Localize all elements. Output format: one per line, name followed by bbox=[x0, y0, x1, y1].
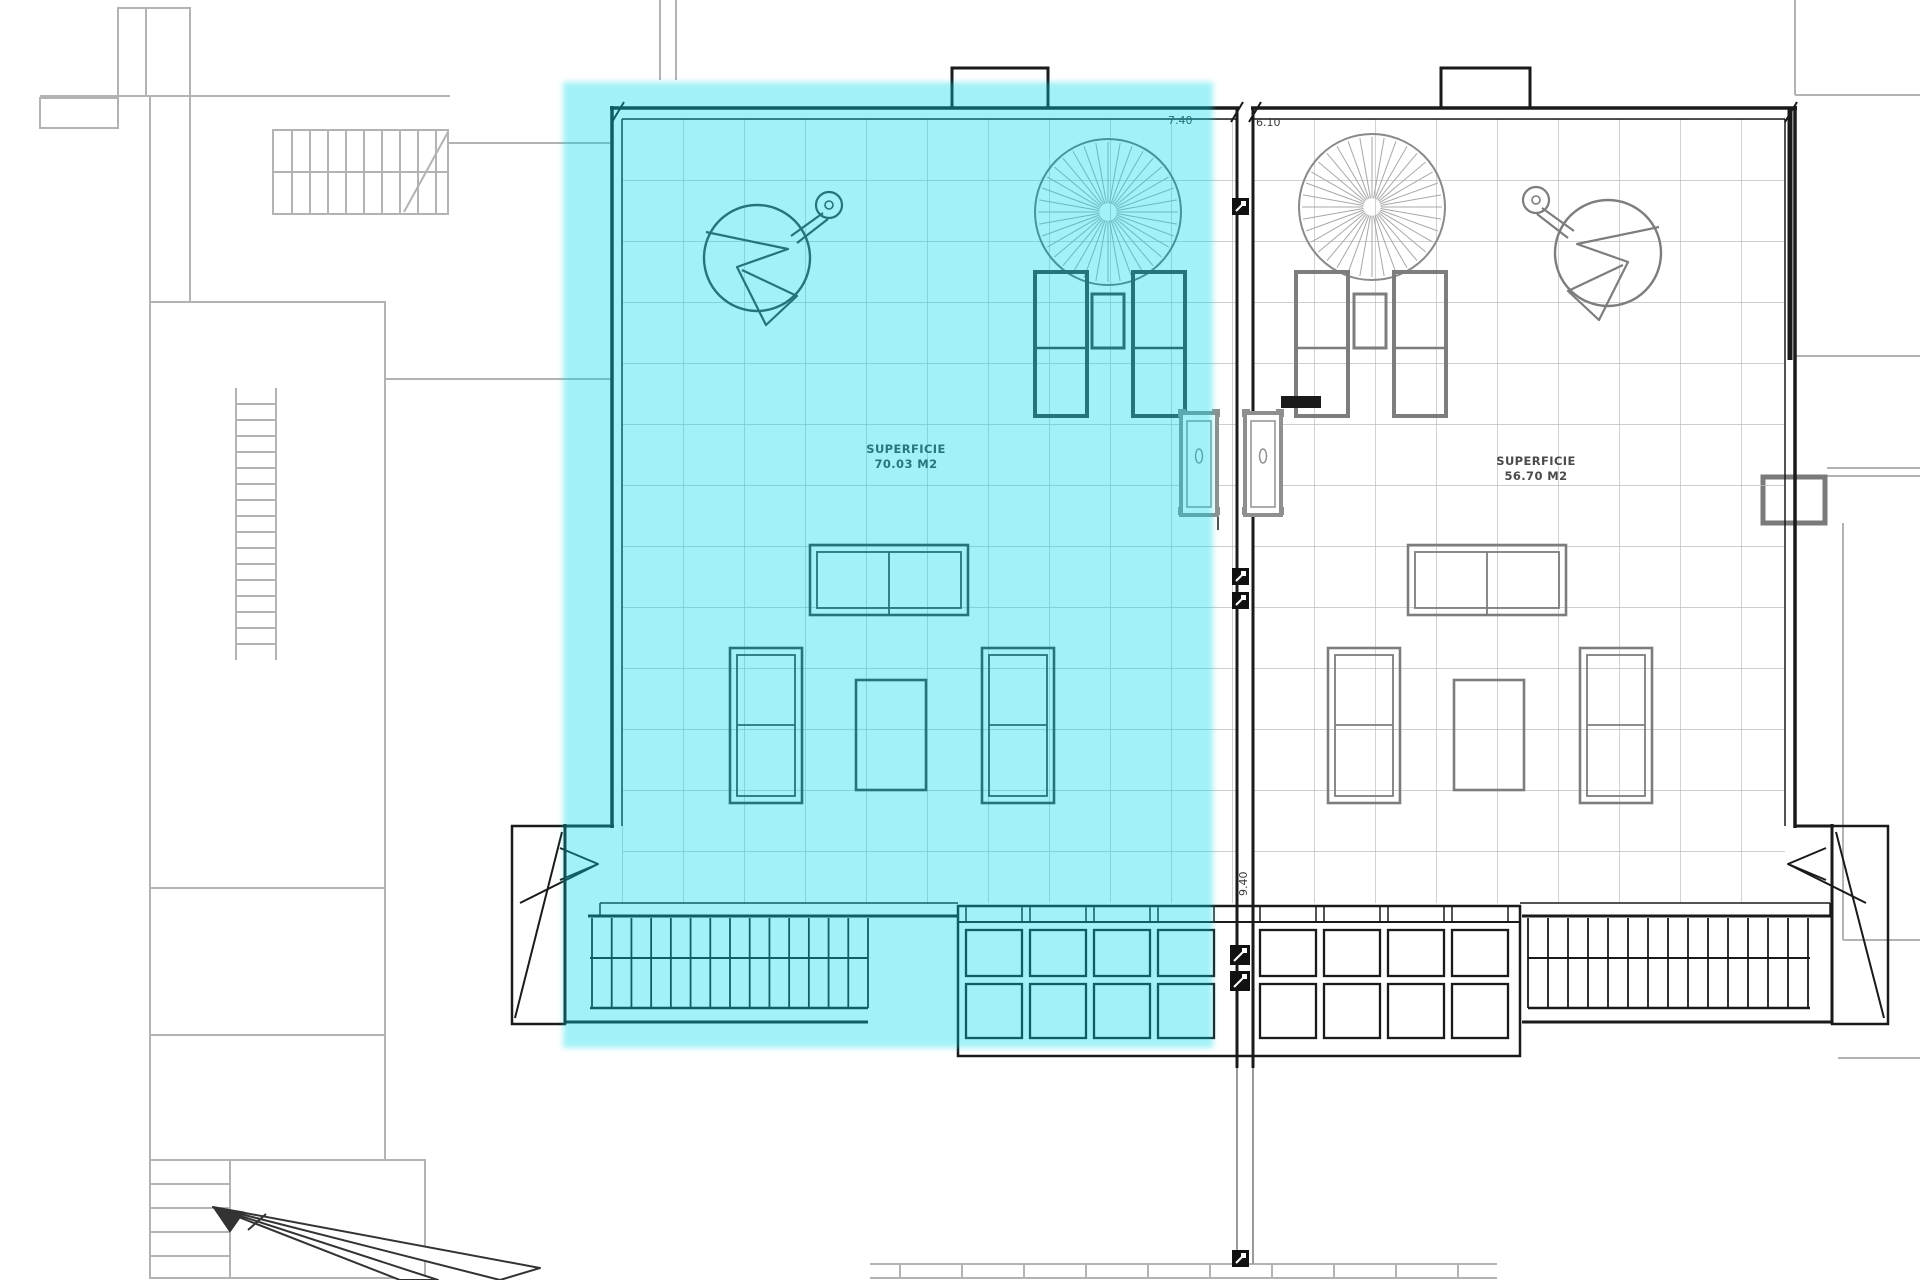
dimension-top-right: 6.10 bbox=[1256, 117, 1281, 129]
unit-left-floor-grid bbox=[622, 119, 1237, 903]
area-label-left-value: 70.03 M2 bbox=[836, 457, 976, 472]
area-label-right-value: 56.70 M2 bbox=[1466, 469, 1606, 484]
dimension-right-side: 9.40 bbox=[1238, 872, 1250, 897]
floor-plan-page: SUPERFICIE 70.03 M2 SUPERFICIE 56.70 M2 … bbox=[0, 0, 1920, 1280]
unit-right-floor-grid bbox=[1253, 119, 1785, 903]
dimension-top-left: 7.40 bbox=[1168, 115, 1193, 127]
area-label-left: SUPERFICIE 70.03 M2 bbox=[836, 442, 976, 472]
area-label-right-title: SUPERFICIE bbox=[1466, 454, 1606, 469]
north-arrow bbox=[213, 1207, 540, 1280]
floor-plan-svg bbox=[0, 0, 1920, 1280]
area-label-right: SUPERFICIE 56.70 M2 bbox=[1466, 454, 1606, 484]
area-label-left-title: SUPERFICIE bbox=[836, 442, 976, 457]
